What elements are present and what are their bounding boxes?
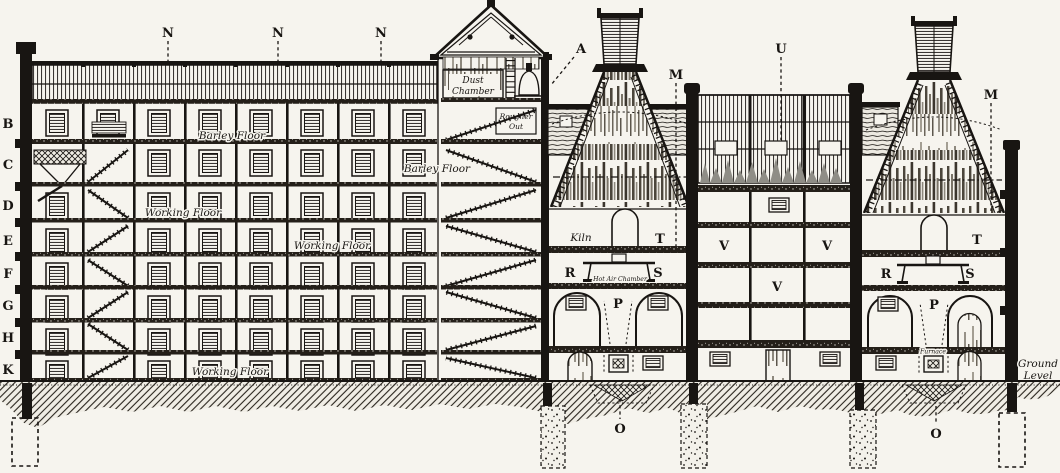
kiln2-drying-floor: T: [862, 213, 1005, 250]
kiln-drying-floor: Kiln T: [549, 207, 686, 247]
arch-opening: [958, 314, 981, 348]
ref-letter-r1: R: [565, 266, 576, 281]
store-right-wall: [850, 92, 862, 383]
engraving-canvas: Dust Chamber Rougher Out: [0, 0, 1060, 473]
ground-level-label-line1: Ground: [1018, 358, 1058, 370]
basement-door: [568, 352, 592, 381]
ref-letter-k: K: [2, 363, 14, 378]
parapet-coping-left: [546, 104, 590, 109]
working-floor-upper-label: Working Floor: [145, 207, 222, 219]
dust-chamber-floor: [441, 98, 541, 102]
kiln2-door: [921, 215, 947, 250]
ref-letter-f: F: [3, 267, 13, 282]
ref-letter-v3: V: [771, 280, 783, 295]
ref-letter-n3: N: [375, 26, 387, 41]
attic-band: [443, 57, 539, 69]
store-left-wall-cap: [684, 83, 700, 94]
hoist-platform: [92, 122, 126, 138]
ref-letter-v1: V: [718, 239, 730, 254]
ref-letter-s2: S: [965, 267, 974, 282]
ref-letter-o1: O: [614, 422, 625, 437]
ref-letter-m1: M: [669, 68, 683, 83]
furnace-box-2: Furnace: [919, 349, 948, 374]
ref-letter-e: E: [3, 234, 13, 249]
ref-letter-o2: O: [930, 427, 941, 442]
rougher-out-label-line2: Out: [509, 122, 524, 131]
ref-letter-u: U: [775, 42, 787, 57]
barley-floor-lower-label: Barley Floor: [403, 163, 471, 175]
store-right-wall-cap: [848, 83, 864, 94]
dust-chamber: Dust Chamber: [443, 70, 503, 98]
malthouse-left-wall: [20, 52, 32, 383]
furnace-box: [604, 355, 633, 373]
dust-chamber-label-line1: Dust: [461, 76, 484, 86]
tower-right-wall: [541, 52, 549, 383]
maltings-section-engraving: Dust Chamber Rougher Out: [0, 0, 1060, 473]
barley-floor-upper-label: Barley Floor: [198, 130, 266, 142]
dust-chamber-label-line2: Chamber: [452, 87, 495, 97]
ref-letter-h: H: [2, 331, 14, 346]
store-vents: [715, 141, 841, 155]
store-left-wall: [686, 92, 698, 383]
ref-letter-s1: S: [653, 266, 662, 281]
ref-letter-t2: T: [972, 233, 982, 248]
parapet-coping-2: [860, 102, 900, 107]
ref-letter-p2: P: [929, 298, 939, 313]
ref-letter-c: C: [3, 158, 13, 173]
ref-letter-b: B: [3, 117, 14, 132]
kiln-label: Kiln: [569, 232, 592, 244]
parapet-window: [560, 116, 572, 127]
ref-letter-t1: T: [655, 232, 665, 247]
ref-letter-d: D: [2, 199, 13, 214]
working-floor-middle-label: Working Floor: [294, 240, 371, 252]
roof-finial: [487, 0, 495, 7]
furnace-label: Furnace: [919, 349, 946, 356]
ref-letter-v2: V: [821, 239, 833, 254]
ref-letter-n1: N: [162, 26, 174, 41]
hot-air-chamber-label: Hot Air Chamber: [592, 276, 648, 283]
ref-letter-a: A: [575, 42, 587, 57]
basement-opening-2: [958, 352, 981, 382]
ref-letter-p1: P: [613, 297, 623, 312]
ref-letter-n2: N: [272, 26, 284, 41]
store-basement-door: [766, 350, 790, 381]
working-floor-bottom-label: Working Floor: [192, 366, 269, 378]
ref-letter-r2: R: [881, 267, 892, 282]
kiln-door: [612, 209, 638, 246]
ref-letter-m2: M: [984, 88, 998, 103]
ref-letter-g: G: [2, 299, 13, 314]
malthouse-wall-cap: [16, 42, 36, 54]
